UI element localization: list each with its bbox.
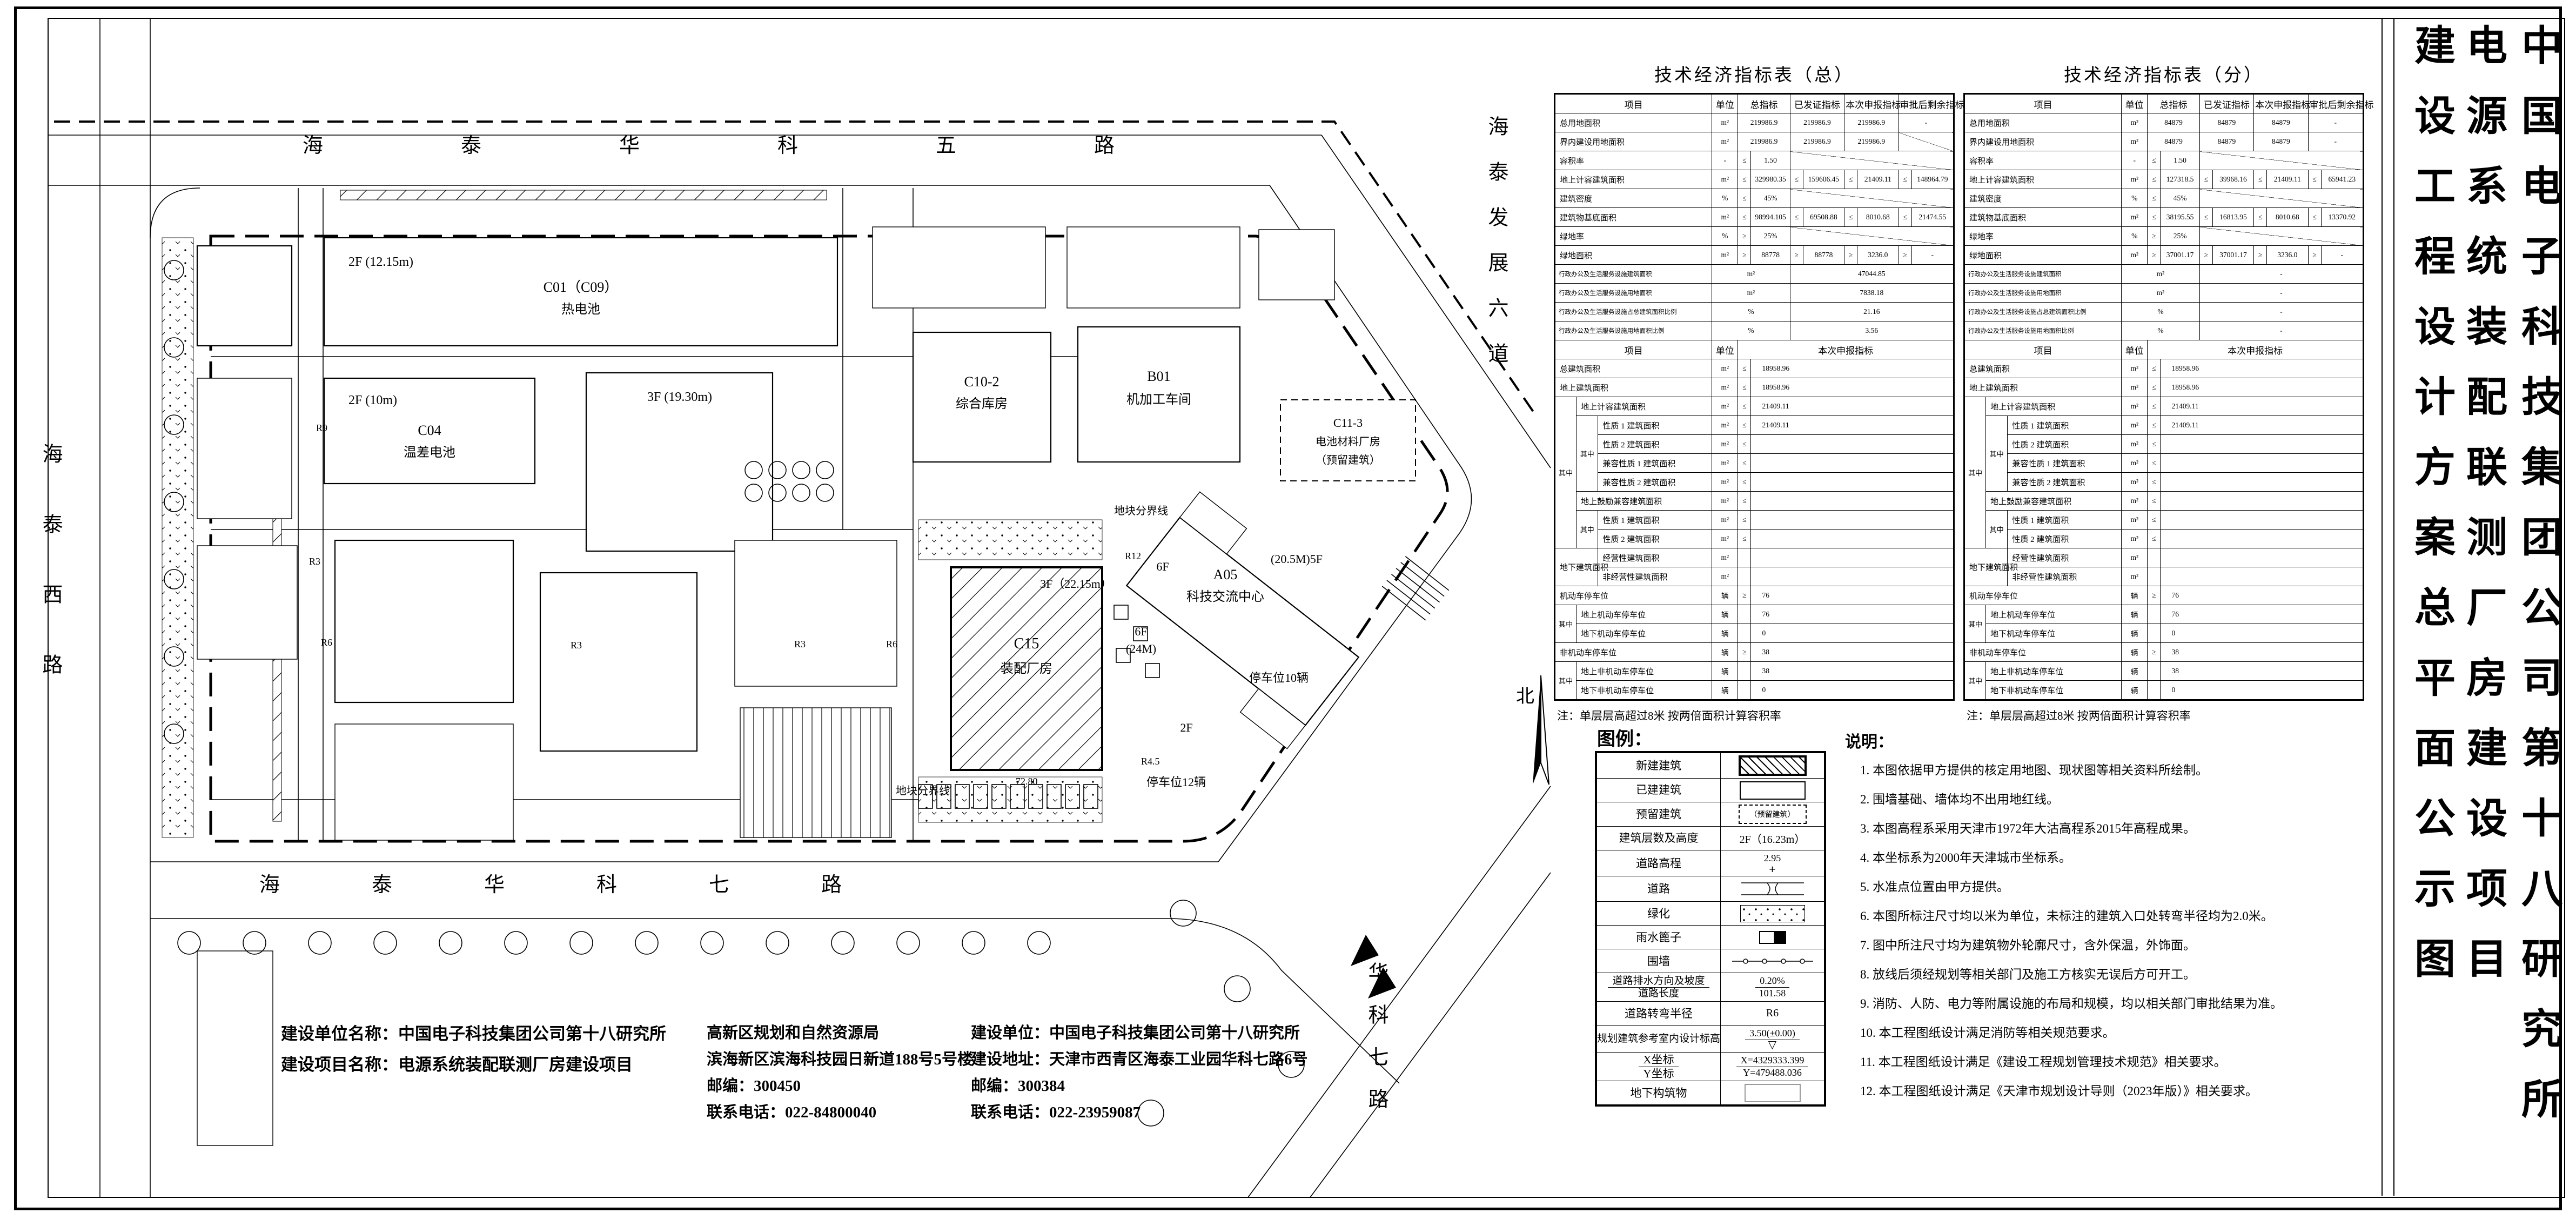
table-row: 地上计容建筑面积m²≤127318.5≤39968.16≤21409.11≤65… <box>1964 170 2364 189</box>
table-cell: 18958.96 <box>2161 359 2364 378</box>
table-cell <box>2161 567 2364 586</box>
text-shape: (20.5M)5F <box>1271 552 1323 566</box>
table-cell: m² <box>2122 378 2148 397</box>
table-cell: % <box>2122 303 2200 321</box>
table-cell: 经营性建筑面积 <box>1598 548 1712 567</box>
table-cell: ≤ <box>2308 208 2321 227</box>
table-cell: 兼容性质 2 建筑面积 <box>1598 473 1712 492</box>
rect-shape <box>1145 664 1159 678</box>
table-row: 行政办公及生活服务设施建筑面积m²- <box>1964 265 2364 284</box>
text-shape: 2F (10m) <box>348 393 397 407</box>
table-cell: 7838.18 <box>1790 284 1954 303</box>
table-row: 性质 2 建筑面积m²≤ <box>1964 530 2364 548</box>
table-cell: 单位 <box>1712 340 1738 359</box>
table-cell: ≥ <box>2254 246 2267 265</box>
table-cell: 38195.55 <box>2161 208 2199 227</box>
table-cell: - <box>1911 246 1954 265</box>
table-row: 建筑物基底面积m²≤38195.55≤16813.95≤8010.68≤1337… <box>1964 208 2364 227</box>
table-cell: 84879 <box>2199 132 2253 151</box>
table-cell: 18958.96 <box>1751 359 1954 378</box>
table-row: 非机动车停车位辆≥38 <box>1555 643 1954 662</box>
legend-label: 围墙 <box>1597 949 1721 973</box>
table-cell: ≤ <box>2148 416 2161 435</box>
table-cell: m² <box>2122 208 2148 227</box>
table-row: 兼容性质 1 建筑面积m²≤ <box>1964 454 2364 473</box>
table-cell: 本次申报指标 <box>1844 94 1899 113</box>
circle-shape <box>1781 959 1786 963</box>
table-cell: % <box>2122 227 2148 246</box>
legend-value: R6 <box>1721 1005 1824 1022</box>
text-shape: 2F <box>1180 721 1192 734</box>
table-cell <box>1738 681 1751 700</box>
table-cell: ≤ <box>1738 151 1751 170</box>
table-cell: ≤ <box>1738 492 1751 511</box>
table-cell: - <box>2308 132 2363 151</box>
table-cell: 39968.16 <box>2212 170 2253 189</box>
table-cell: 88778 <box>1751 246 1790 265</box>
table-row: 地下建筑面积经营性建筑面积m² <box>1964 548 2364 567</box>
line-shape <box>1396 568 1439 602</box>
table-cell: m² <box>2122 416 2148 435</box>
table-row: 地下非机动车停车位辆0 <box>1964 681 2364 700</box>
text-shape: 机加工车间 <box>1126 392 1191 407</box>
table-cell: 性质 2 建筑面积 <box>2008 530 2122 548</box>
table-cell: 辆 <box>1712 586 1738 605</box>
table-cell: 行政办公及生活服务设施用地面积 <box>1555 284 1712 303</box>
table-cell: 性质 2 建筑面积 <box>1598 435 1712 454</box>
text-shape: R6 <box>886 639 897 649</box>
economic-table-total: 技术经济指标表（总） 项目单位总指标已发证指标本次申报指标审批后剩余指标总用地面… <box>1554 61 1955 723</box>
table-cell: 本次申报指标 <box>1738 340 1954 359</box>
table-row: 行政办公及生活服务设施占总建筑面积比例%21.16 <box>1555 303 1954 321</box>
table-cell: m² <box>1712 208 1738 227</box>
table-cell: 其中 <box>1555 605 1577 643</box>
table-cell: m² <box>2122 397 2148 416</box>
table-cell: 审批后剩余指标 <box>1899 94 1954 113</box>
rect-shape <box>197 378 292 519</box>
table-cell: m² <box>2122 492 2148 511</box>
table-row: 地下非机动车停车位辆0 <box>1555 681 1954 700</box>
builder-postcode: 邮编：300384 <box>971 1078 1308 1094</box>
table-cell: 3236.0 <box>2267 246 2308 265</box>
footer-authority-block: 高新区规划和自然资源局 滨海新区滨海科技园日新道188号5号楼 邮编：30045… <box>707 1026 973 1131</box>
text-shape: 3F（22.15m） <box>1040 577 1112 591</box>
legend-row-xy-coordinates: X坐标 Y坐标 X=4329333.399 Y=479488.036 <box>1597 1052 1824 1081</box>
wall-icon <box>1732 957 1813 965</box>
table-cell: 行政办公及生活服务设施占总建筑面积比例 <box>1964 303 2122 321</box>
table-cell: ≤ <box>1738 359 1751 378</box>
path-shape <box>150 188 200 238</box>
text-shape: 地块分界线 <box>1114 505 1168 517</box>
table-row: 机动车停车位辆≥76 <box>1964 586 2364 605</box>
table-row: 非经营性建筑面积m² <box>1964 567 2364 586</box>
road-elevation-symbol: 2.95 + <box>1764 853 1781 874</box>
table-cell: 其中 <box>1986 416 2008 492</box>
table-cell: ≥ <box>1899 246 1911 265</box>
table-cell <box>1738 662 1751 681</box>
rect-shape <box>197 546 297 659</box>
table-cell: 65941.23 <box>2321 170 2363 189</box>
table-note: 注：单层层高超过8米 按两倍面积计算容积率 <box>1963 707 2364 723</box>
table-cell: 0 <box>1751 624 1954 643</box>
table-row: 性质 2 建筑面积m²≤ <box>1555 435 1954 454</box>
table-cell: 行政办公及生活服务设施建筑面积 <box>1555 265 1712 284</box>
table-row: 建筑物基底面积m²≤98994.105≤69508.88≤8010.68≤214… <box>1555 208 1954 227</box>
table-cell: 总指标 <box>2148 94 2199 113</box>
table-cell: 性质 2 建筑面积 <box>2008 435 2122 454</box>
table-row: 其中地上非机动车停车位辆38 <box>1964 662 2364 681</box>
steps-hatch <box>1382 557 1448 620</box>
table-cell: 界内建设用地面积 <box>1964 132 2122 151</box>
table-cell: m² <box>1712 170 1738 189</box>
circle-shape <box>1028 931 1050 954</box>
note-line: 5. 水准点位置由甲方提供。 <box>1860 876 2377 895</box>
table-cell: m² <box>2122 454 2148 473</box>
table-cell <box>1751 473 1954 492</box>
table-cell: - <box>2199 321 2363 340</box>
legend-value: 2F（16.23m） <box>1721 828 1824 848</box>
table-cell: 1.50 <box>1751 151 1790 170</box>
table-cell: 其中 <box>1555 662 1577 700</box>
table-row: 其中地上非机动车停车位辆38 <box>1555 662 1954 681</box>
table-cell: % <box>1712 321 1790 340</box>
table-cell: 辆 <box>2122 662 2148 681</box>
table-cell <box>2161 511 2364 530</box>
economic-indicator-table: 项目单位总指标已发证指标本次申报指标审批后剩余指标总用地面积m²84879848… <box>1963 93 2364 701</box>
table-cell: 0 <box>1751 681 1954 700</box>
table-cell <box>2199 189 2363 208</box>
table-cell: 84879 <box>2199 113 2253 132</box>
legend-label: 道路转弯半径 <box>1597 1002 1721 1025</box>
authority-address: 滨海新区滨海科技园日新道188号5号楼 <box>707 1052 973 1068</box>
note-line: 6. 本图所标注尺寸均以米为单位，未标注的建筑入口处转弯半径均为2.0米。 <box>1860 906 2377 924</box>
table-cell: 25% <box>2161 227 2199 246</box>
table-cell: m² <box>1712 265 1790 284</box>
table-cell: ≤ <box>2308 170 2321 189</box>
table-cell <box>2148 681 2161 700</box>
table-cell: 地上机动车停车位 <box>1986 605 2122 624</box>
table-row: 建筑密度%≤45% <box>1555 189 1954 208</box>
table-row: 其中性质 1 建筑面积m²≤ <box>1555 511 1954 530</box>
table-cell: 76 <box>2161 586 2364 605</box>
table-cell <box>2199 151 2363 170</box>
table-cell: 76 <box>2161 605 2364 624</box>
table-cell: % <box>1712 303 1790 321</box>
table-cell: 21409.11 <box>1857 170 1899 189</box>
table-cell <box>2161 492 2364 511</box>
road-icon <box>1740 879 1805 899</box>
table-cell: ≥ <box>2148 246 2161 265</box>
text-shape: R6 <box>321 637 332 648</box>
table-cell: 47044.85 <box>1790 265 1954 284</box>
notes-section: 说明： 1. 本图依据甲方提供的核定用地图、现状图等相关资料所绘制。2. 围墙基… <box>1845 728 2377 1110</box>
table-cell: ≤ <box>2148 454 2161 473</box>
table-cell: ≤ <box>1790 170 1803 189</box>
table-cell: ≤ <box>2148 189 2161 208</box>
table-cell: m² <box>2122 548 2148 567</box>
table-cell: 机动车停车位 <box>1555 586 1712 605</box>
table-cell: 地下建筑面积 <box>1555 548 1598 586</box>
table-cell <box>2148 624 2161 643</box>
table-cell: 辆 <box>2122 605 2148 624</box>
table-cell: 行政办公及生活服务设施用地面积 <box>1964 284 2122 303</box>
table-cell: 总用地面积 <box>1964 113 2122 132</box>
rect-shape <box>1126 518 1358 726</box>
table-cell: 25% <box>1751 227 1790 246</box>
table-cell: 148964.79 <box>1911 170 1954 189</box>
table-cell: 本次申报指标 <box>2148 340 2364 359</box>
legend-label: 道路 <box>1597 876 1721 901</box>
table-cell: 其中 <box>1964 397 1986 548</box>
road-label-top: 海泰华科五路 <box>303 129 1252 158</box>
table-cell: 21.16 <box>1790 303 1954 321</box>
legend-label: 建筑层数及高度 <box>1597 827 1721 850</box>
table-cell: 其中 <box>1964 662 1986 700</box>
table-cell: - <box>2122 151 2148 170</box>
table-cell <box>1751 492 1954 511</box>
table-cell: 已发证指标 <box>2199 94 2253 113</box>
authority-phone: 联系电话：022-84800040 <box>707 1105 973 1121</box>
table-cell: 其中 <box>1986 511 2008 548</box>
table-cell: ≤ <box>1738 416 1751 435</box>
table-cell: 37001.17 <box>2212 246 2253 265</box>
table-cell: 329980.35 <box>1751 170 1790 189</box>
table-row: 非机动车停车位辆≥38 <box>1964 643 2364 662</box>
table-row: 容积率-≤1.50 <box>1964 151 2364 170</box>
text-shape: R3 <box>794 639 806 649</box>
table-total-body: 项目单位总指标已发证指标本次申报指标审批后剩余指标总用地面积m²219986.9… <box>1554 93 1955 701</box>
circle-shape <box>766 931 789 954</box>
table-cell: m² <box>2122 246 2148 265</box>
table-row: 地上计容建筑面积m²≤329980.35≤159606.45≤21409.11≤… <box>1555 170 1954 189</box>
table-cell <box>2148 662 2161 681</box>
table-row: 界内建设用地面积m²219986.9219986.9219986.9 <box>1555 132 1954 151</box>
table-cell: 兼容性质 2 建筑面积 <box>2008 473 2122 492</box>
circle-shape <box>701 931 723 954</box>
table-cell: 辆 <box>1712 643 1738 662</box>
road-label-left: 海泰西路 <box>36 443 65 724</box>
project-name: 建设项目名称：电源系统装配联测厂房建设项目 <box>281 1056 666 1073</box>
table-cell: 总用地面积 <box>1555 113 1712 132</box>
table-cell: ≤ <box>1738 208 1751 227</box>
table-cell: 3236.0 <box>1857 246 1899 265</box>
north-label: 北 <box>1516 687 1534 707</box>
table-cell: m² <box>1712 548 1738 567</box>
table-cell: m² <box>2122 284 2200 303</box>
table-cell: - <box>1712 151 1738 170</box>
note-line: 9. 消防、人防、电力等附属设施的布局和规模，均以相关部门审批结果为准。 <box>1860 993 2377 1011</box>
table-cell: 性质 2 建筑面积 <box>1598 530 1712 548</box>
circle-shape <box>439 931 462 954</box>
table-cell: ≤ <box>2199 170 2212 189</box>
rect-shape <box>197 951 273 1145</box>
table-cell: 21409.11 <box>1751 397 1954 416</box>
table-cell: ≥ <box>2148 643 2161 662</box>
table-cell: 辆 <box>2122 624 2148 643</box>
table-cell: 项目 <box>1555 94 1712 113</box>
table-cell: ≤ <box>1738 435 1751 454</box>
table-cell: - <box>1899 113 1954 132</box>
legend-row-underground: 地下构筑物 <box>1597 1081 1824 1104</box>
table-cell: % <box>1712 189 1738 208</box>
table-cell: m² <box>1712 567 1738 586</box>
text-shape: 电池材料厂房 <box>1316 435 1380 448</box>
table-cell: m² <box>1712 132 1738 151</box>
text-shape: 科技交流中心 <box>1186 589 1264 604</box>
table-cell: ≥ <box>2148 227 2161 246</box>
table-cell: 其中 <box>1577 511 1598 548</box>
authority-name: 高新区规划和自然资源局 <box>707 1026 973 1041</box>
legend-label: 道路排水方向及坡度 道路长度 <box>1597 973 1721 1001</box>
path-shape <box>1741 883 1804 895</box>
title-block-divider <box>2382 19 2383 1196</box>
rect-shape <box>335 724 513 840</box>
text-shape: 72.80 <box>1016 776 1038 787</box>
table-cell <box>2148 567 2161 586</box>
table-cell <box>1899 132 1954 151</box>
table-cell: 地上鼓励兼容建筑面积 <box>1577 492 1712 511</box>
table-cell: 21409.11 <box>2161 397 2364 416</box>
table-cell: ≤ <box>1738 189 1751 208</box>
table-cell: ≥ <box>1738 246 1751 265</box>
table-cell: ≤ <box>1738 378 1751 397</box>
table-cell: 127318.5 <box>2161 170 2199 189</box>
table-cell: 行政办公及生活服务设施用地面积比例 <box>1964 321 2122 340</box>
table-cell: ≤ <box>2148 530 2161 548</box>
text-shape: A05 <box>1213 567 1238 582</box>
table-cell: 其中 <box>1964 605 1986 643</box>
table-cell: 16813.95 <box>2212 208 2253 227</box>
table-cell: ≥ <box>1738 586 1751 605</box>
table-cell: 159606.45 <box>1803 170 1844 189</box>
table-cell: ≤ <box>2148 435 2161 454</box>
table-row: 项目单位总指标已发证指标本次申报指标审批后剩余指标 <box>1555 94 1954 113</box>
legend-label: 新建建筑 <box>1597 753 1721 778</box>
legend-row-new-building: 新建建筑 <box>1597 753 1824 778</box>
table-title: 技术经济指标表（分） <box>1963 61 2364 86</box>
table-cell: ≤ <box>2148 492 2161 511</box>
legend-row-turn-radius: 道路转弯半径 R6 <box>1597 1001 1824 1025</box>
table-cell: 地上非机动车停车位 <box>1986 662 2122 681</box>
table-cell: ≤ <box>2254 170 2267 189</box>
table-cell: ≤ <box>2148 473 2161 492</box>
text-shape: R9 <box>316 423 327 433</box>
text-shape: 装配厂房 <box>1001 661 1052 676</box>
table-cell: m² <box>1712 416 1738 435</box>
legend: 新建建筑 已建建筑 预留建筑 （预留建筑） 建筑层数及高度 2F（16.23m）… <box>1595 751 1826 1107</box>
table-cell <box>1751 435 1954 454</box>
table-cell: 45% <box>2161 189 2199 208</box>
table-cell: 绿地面积 <box>1555 246 1712 265</box>
table-cell: 地上计容建筑面积 <box>1964 170 2122 189</box>
legend-label: 规划建筑参考室内设计标高 <box>1597 1026 1721 1052</box>
table-row: 其中地上计容建筑面积m²≤21409.11 <box>1964 397 2364 416</box>
legend-label: 预留建筑 <box>1597 802 1721 826</box>
public-notice-sheet: { "sheet": { "title_columns": [ "中国电子科技集… <box>0 0 2576 1213</box>
table-cell: m² <box>2122 473 2148 492</box>
circle-shape <box>897 931 920 954</box>
circle-shape <box>1743 959 1748 963</box>
table-cell: m² <box>2122 511 2148 530</box>
text-shape: C04 <box>418 423 441 438</box>
table-cell: - <box>2199 265 2363 284</box>
table-cell <box>2199 227 2363 246</box>
table-row: 地上建筑面积m²≤18958.96 <box>1964 378 2364 397</box>
table-cell: 非机动车停车位 <box>1555 643 1712 662</box>
text-shape: (24M) <box>1126 642 1156 655</box>
table-cell: ≤ <box>1738 511 1751 530</box>
legend-row-existing-building: 已建建筑 <box>1597 778 1824 802</box>
table-cell: m² <box>2122 265 2200 284</box>
table-cell: 8010.68 <box>2267 208 2308 227</box>
table-cell: m² <box>2122 113 2148 132</box>
table-cell: % <box>1712 227 1738 246</box>
sheet-title-project: 电源系统装配联测厂房建设项目 <box>2453 24 2512 1007</box>
circle-shape <box>1224 976 1250 1002</box>
legend-label: 绿化 <box>1597 902 1721 925</box>
table-cell: ≤ <box>1899 208 1911 227</box>
text-shape: B01 <box>1147 368 1170 384</box>
table-cell: - <box>2199 303 2363 321</box>
rect-shape <box>1067 227 1240 308</box>
table-cell <box>1790 227 1954 246</box>
table-row: 界内建设用地面积m²848798487984879- <box>1964 132 2364 151</box>
table-note: 注：单层层高超过8米 按两倍面积计算容积率 <box>1554 707 1955 723</box>
circle-shape <box>1800 959 1804 963</box>
notes-list: 1. 本图依据甲方提供的核定用地图、现状图等相关资料所绘制。2. 围墙基础、墙体… <box>1845 760 2377 1099</box>
table-cell: 45% <box>1751 189 1790 208</box>
table-cell: 行政办公及生活服务设施用地面积比例 <box>1555 321 1712 340</box>
circle-shape <box>816 461 834 479</box>
table-cell: 3.56 <box>1790 321 1954 340</box>
table-cell: 地上鼓励兼容建筑面积 <box>1986 492 2122 511</box>
table-cell <box>1790 189 1954 208</box>
sheet-title-drawing: 建设工程设计方案总平面公示图 <box>2401 24 2460 1007</box>
table-row: 机动车停车位辆≥76 <box>1555 586 1954 605</box>
table-cell: 建筑密度 <box>1964 189 2122 208</box>
new-building-swatch <box>1739 755 1807 776</box>
authority-postcode: 邮编：300450 <box>707 1078 973 1094</box>
table-row: 其中性质 1 建筑面积m²≤ <box>1964 511 2364 530</box>
legend-row-floors-height: 建筑层数及高度 2F（16.23m） <box>1597 826 1824 850</box>
table-cell: m² <box>2122 530 2148 548</box>
note-line: 12. 本工程图纸设计满足《天津市规划设计导则（2023年版）》相关要求。 <box>1860 1081 2377 1099</box>
table-cell: 辆 <box>2122 643 2148 662</box>
circle-shape <box>308 931 331 954</box>
economic-table-partial: 技术经济指标表（分） 项目单位总指标已发证指标本次申报指标审批后剩余指标总用地面… <box>1963 61 2364 723</box>
table-cell: ≤ <box>1738 530 1751 548</box>
table-cell: 地下机动车停车位 <box>1986 624 2122 643</box>
table-row: 性质 2 建筑面积m²≤ <box>1964 435 2364 454</box>
table-row: 行政办公及生活服务设施建筑面积m²47044.85 <box>1555 265 1954 284</box>
table-cell: 地上机动车停车位 <box>1577 605 1712 624</box>
table-cell: m² <box>1712 397 1738 416</box>
table-cell <box>1738 548 1751 567</box>
circle-shape <box>831 931 854 954</box>
table-cell: 性质 1 建筑面积 <box>1598 511 1712 530</box>
table-cell: 84879 <box>2148 132 2199 151</box>
table-row: 行政办公及生活服务设施用地面积比例%- <box>1964 321 2364 340</box>
table-cell: 界内建设用地面积 <box>1555 132 1712 151</box>
circle-shape <box>962 931 985 954</box>
rain-grate-swatch <box>1759 931 1786 944</box>
table-cell: m² <box>2122 170 2148 189</box>
table-cell: m² <box>2122 132 2148 151</box>
table-cell: 兼容性质 1 建筑面积 <box>2008 454 2122 473</box>
xy-coordinate-values: X=4329333.399 Y=479488.036 <box>1736 1055 1809 1078</box>
table-cell: 非机动车停车位 <box>1964 643 2122 662</box>
text-shape: 热电池 <box>561 302 600 317</box>
